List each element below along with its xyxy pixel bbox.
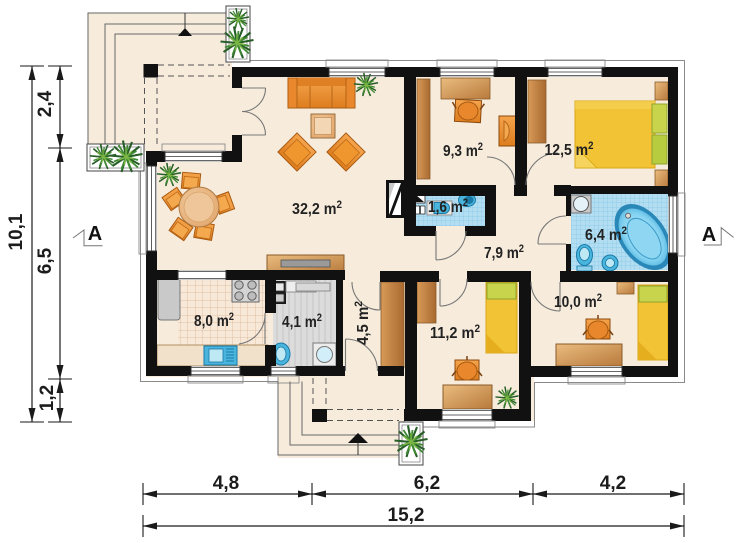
svg-text:4,1 m2: 4,1 m2 <box>282 312 322 331</box>
svg-text:10,0 m2: 10,0 m2 <box>554 292 602 311</box>
svg-text:A: A <box>88 223 102 245</box>
svg-text:4,8: 4,8 <box>213 473 239 494</box>
svg-text:8,0 m2: 8,0 m2 <box>194 311 234 330</box>
svg-text:6,4 m2: 6,4 m2 <box>585 225 627 244</box>
svg-text:6,5: 6,5 <box>35 247 56 274</box>
svg-text:6,2: 6,2 <box>414 473 440 494</box>
svg-text:A: A <box>702 224 716 246</box>
svg-text:15,2: 15,2 <box>388 505 425 526</box>
svg-text:9,3 m2: 9,3 m2 <box>443 141 483 160</box>
svg-text:2,4: 2,4 <box>35 90 56 117</box>
svg-text:32,2 m2: 32,2 m2 <box>292 199 342 218</box>
svg-text:10,1: 10,1 <box>6 213 27 250</box>
svg-text:12,5 m2: 12,5 m2 <box>545 140 594 159</box>
svg-text:1,6 m2: 1,6 m2 <box>428 197 468 216</box>
svg-text:11,2 m2: 11,2 m2 <box>430 323 480 342</box>
svg-text:7,9 m2: 7,9 m2 <box>484 243 524 262</box>
svg-text:4,5 m2: 4,5 m2 <box>353 301 372 345</box>
svg-text:4,2: 4,2 <box>600 473 626 494</box>
svg-text:1,2: 1,2 <box>37 385 58 411</box>
